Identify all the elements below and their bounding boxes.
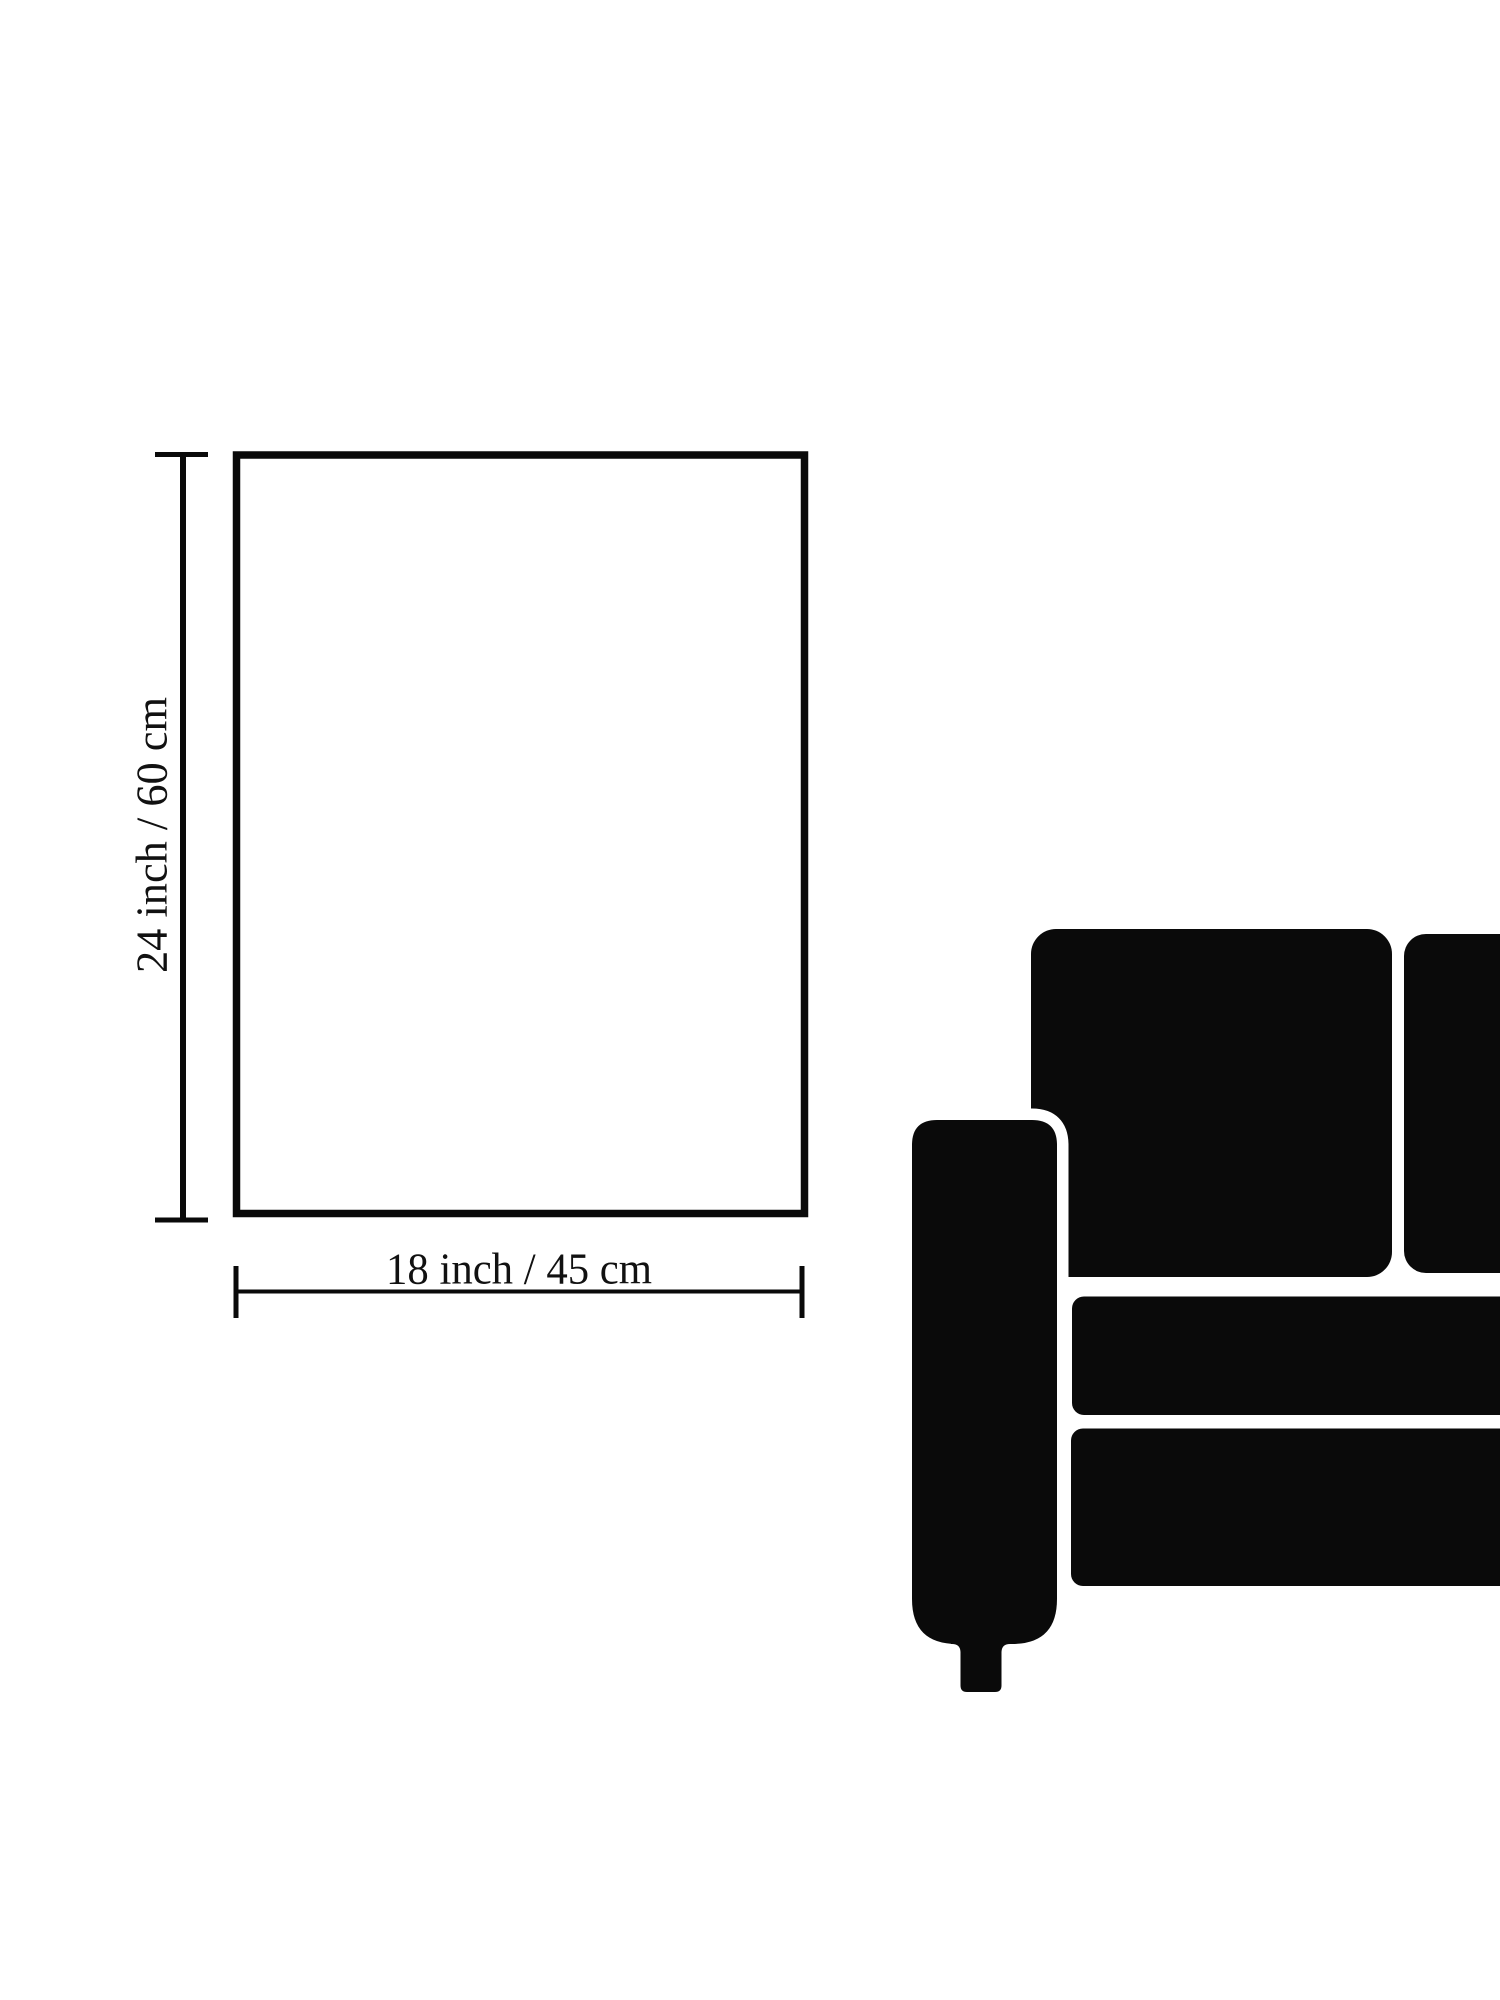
svg-text:24 inch / 60 cm: 24 inch / 60 cm (128, 697, 177, 973)
svg-text:18 inch / 45 cm: 18 inch / 45 cm (386, 1245, 652, 1294)
